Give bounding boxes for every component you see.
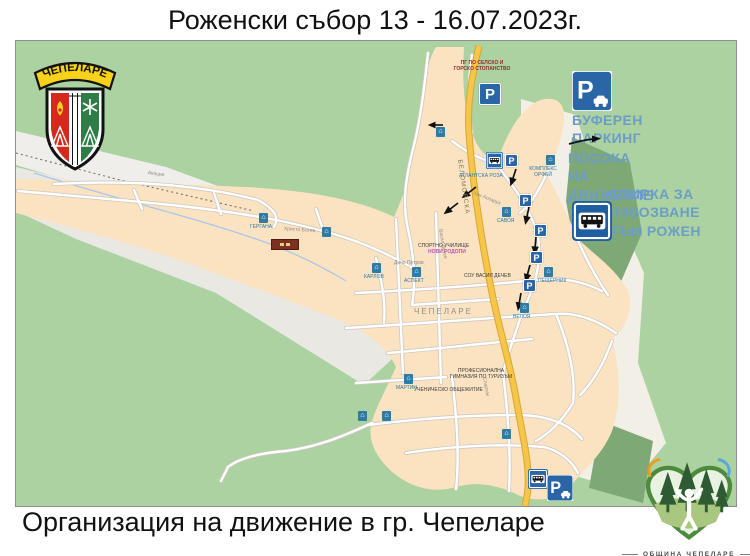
poi-label-atlantska: АТЛАНТСКА РОЗА	[459, 174, 503, 180]
svg-text:P: P	[550, 479, 561, 497]
bus-stop-icon	[528, 469, 548, 489]
hotel-icon: ⌂	[404, 374, 413, 384]
parking-sign: P	[534, 224, 547, 237]
parking-sign-icon: P	[572, 71, 612, 111]
heart-trees-graphic	[630, 445, 748, 545]
municipality-name: ОБЩИНА ЧЕПЕЛАРЕ	[643, 551, 735, 556]
poi-label-peshternik: ПЕЩЕРНИК	[538, 279, 566, 285]
map-frame: ЧЕПЕЛАРЕ БЕЛОМОРСКА Христо Ботев Дичо Пе…	[15, 40, 737, 507]
hotel-icon: ⌂	[358, 411, 367, 421]
hotel-icon: ⌂	[372, 263, 381, 273]
bus-stop-sign-icon	[572, 201, 612, 241]
poi-label-tourism-school: ПРОФЕСИОНАЛНА ГИМНАЗИЯ ПО ТУРИЗЪМ	[446, 369, 516, 381]
bus-stop-icon	[486, 152, 503, 169]
poi-label-aspekt: АСПЕКТ	[404, 279, 424, 285]
poi-label-gergana: ГЕРГАНА	[250, 225, 272, 231]
parking-sign: P	[519, 194, 532, 207]
svg-text:P: P	[577, 77, 594, 105]
page-title: Роженски събор 13 - 16.07.2023г.	[0, 5, 750, 36]
town-name-label: ЧЕПЕЛАРЕ	[414, 307, 473, 316]
poi-label-veloya: ВЕЛОЯ	[513, 315, 530, 321]
poi-label-agro-school: ПГ ПО СЕЛСКО И ГОРСКО СТОПАНСТВО	[434, 61, 530, 73]
parking-sign: P	[530, 251, 543, 264]
hotel-icon: ⌂	[520, 303, 529, 313]
chepelare-coat-of-arms: ЧЕПЕЛАРЕ	[29, 49, 121, 180]
green-heart-logo: ОБЩИНА ЧЕПЕЛАРЕ ЗЕЛЕНОТО СЪРЦЕ на Българ…	[612, 445, 750, 556]
page-caption: Организация на движение в гр. Чепеларе	[22, 507, 545, 538]
hotel-icon: ⌂	[502, 429, 511, 439]
poi-label-karlov: КАРЛОВ	[364, 275, 384, 281]
poi-label-dormitory: УЧЕНИЧЕСКО ОБЩЕЖИТИЕ	[414, 388, 483, 394]
parking-sign: P	[505, 154, 518, 167]
poi-label-savoya: САВОЯ	[497, 219, 514, 225]
hotel-icon: ⌂	[322, 227, 331, 237]
buffer-parking-sign: P	[547, 475, 573, 501]
legend-bus-label: СПИРКА ЗА ИЗВОЗВАНЕ КЪМ РОЖЕН	[609, 185, 732, 240]
poi-label-orpheus: КОМПЛЕКС ОРФЕЙ	[521, 167, 565, 179]
station-marker	[271, 239, 299, 250]
direction-arrow-icon	[568, 133, 602, 149]
poi-label-sou: СОУ ВАСИЛ ДЕЧЕВ	[464, 274, 511, 280]
street-label: Дичо Петров	[394, 261, 424, 267]
poi-label-novi-rodopi: НОВИ РОДОПИ	[428, 250, 466, 256]
hotel-icon: ⌂	[412, 267, 421, 277]
buffer-parking-sign: P	[479, 83, 501, 105]
hotel-icon: ⌂	[436, 127, 445, 137]
legend-bus-row: СПИРКА ЗА ИЗВОЗВАНЕ КЪМ РОЖЕН	[572, 185, 732, 240]
hotel-icon: ⌂	[502, 207, 511, 217]
hotel-icon: ⌂	[382, 411, 391, 421]
hotel-icon: ⌂	[546, 155, 555, 165]
parking-sign: P	[523, 279, 536, 292]
traffic-plan-poster: Роженски събор 13 - 16.07.2023г.	[0, 0, 750, 556]
municipality-line: ОБЩИНА ЧЕПЕЛАРЕ	[612, 551, 750, 556]
hotel-icon: ⌂	[259, 213, 268, 223]
hotel-icon: ⌂	[544, 267, 553, 277]
